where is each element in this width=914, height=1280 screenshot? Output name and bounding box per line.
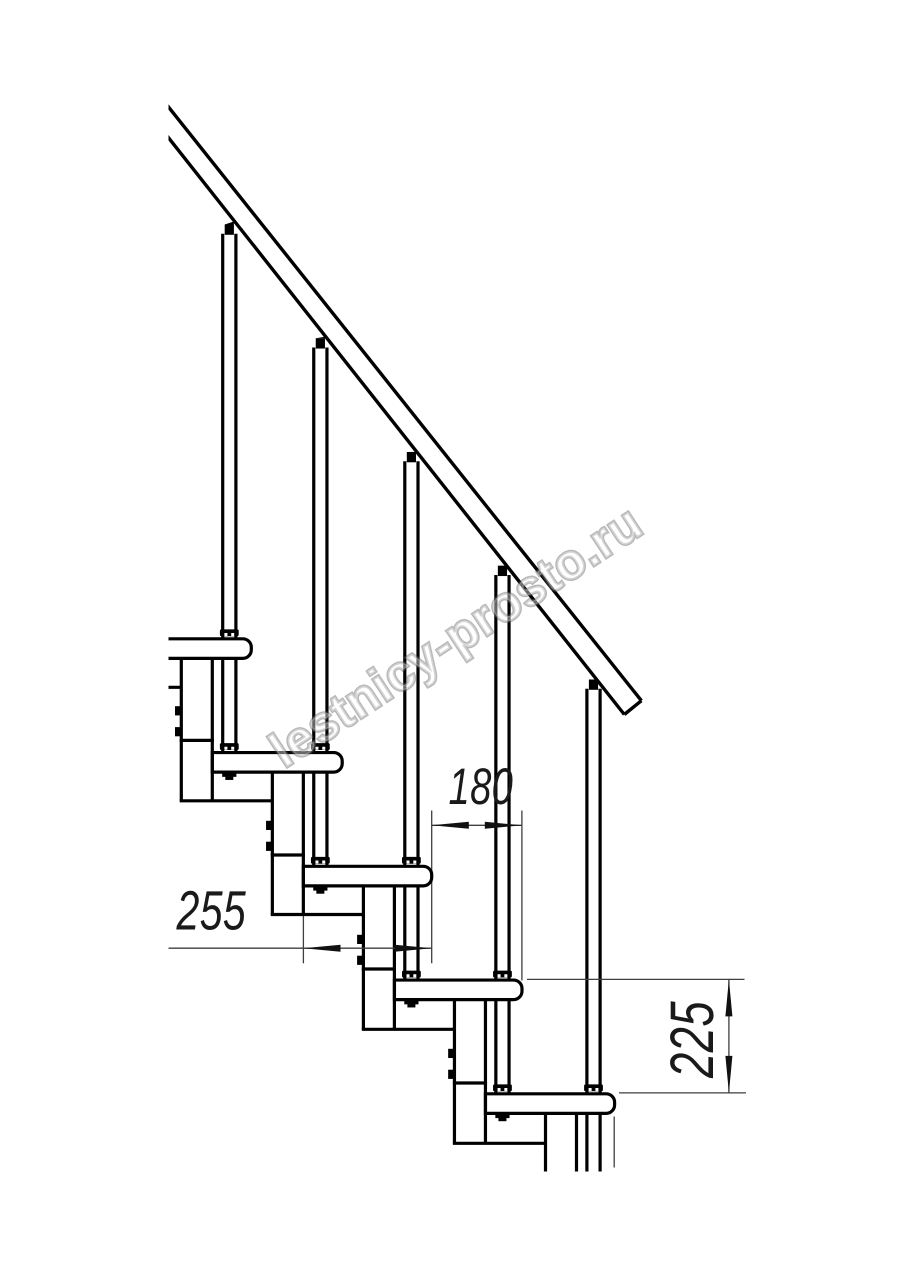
svg-text:255: 255 bbox=[176, 880, 246, 942]
svg-text:225: 225 bbox=[658, 1001, 727, 1079]
svg-text:180: 180 bbox=[449, 757, 514, 815]
